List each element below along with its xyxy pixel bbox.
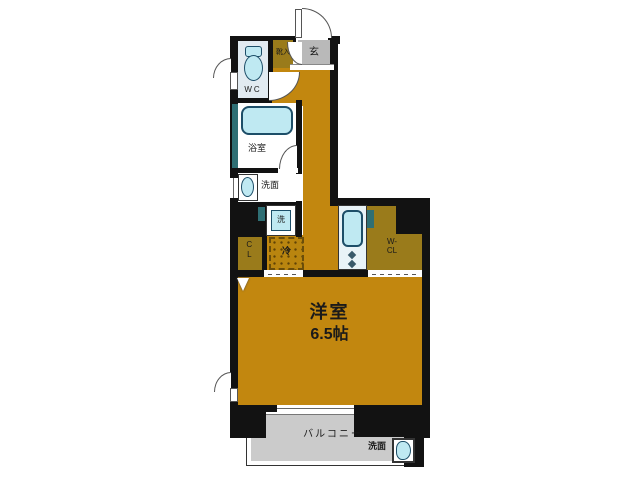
main-room-size: 6.5帖	[237, 326, 422, 344]
entrance-door-leaf	[295, 9, 302, 38]
balcony-label: バルコニー	[251, 429, 415, 440]
bathtub-icon	[241, 106, 293, 135]
entrance-step	[290, 64, 334, 70]
opening-fridge-to-room	[264, 270, 303, 277]
washer-label: 洗	[271, 212, 291, 228]
walk-in-closet-label: W- CL	[378, 238, 406, 256]
toilet-bowl-icon	[244, 55, 263, 81]
wall-wing-notch	[396, 198, 426, 234]
main-room-title: 洋室 6.5帖	[237, 303, 422, 343]
outdoor-basin-label: 洗面	[368, 442, 386, 452]
window-mainroom-south	[277, 405, 354, 412]
closet-cl-label: CL	[244, 240, 253, 260]
hallway-floor-lower	[303, 202, 338, 270]
wall-cl-right	[262, 235, 267, 270]
kitchen-sink-icon	[342, 210, 363, 247]
opening-wcl-to-room	[368, 270, 422, 277]
wall-strip-bottom-mid	[303, 270, 368, 277]
mainroom-west-door-swing-arc	[214, 372, 231, 392]
hallway-floor-mid	[303, 100, 330, 204]
mainroom-door-marker	[237, 278, 249, 291]
entrance-door-swing-arc	[302, 8, 332, 38]
mainroom-west-door-leaf	[230, 388, 238, 402]
wcl-line1: W-	[387, 237, 397, 246]
pipe-space-laundry	[258, 207, 265, 221]
washroom-sink-bowl-icon	[241, 177, 254, 197]
pipe-space-kitchen	[367, 210, 374, 228]
floor-plan: WC 靴入 玄 浴室 洗面 洗 CL 冷 W- CL 洋室 6.5帖	[0, 0, 640, 480]
wcl-line2: CL	[387, 246, 397, 255]
entrance-label: 玄	[303, 45, 325, 59]
bathroom-label: 浴室	[248, 144, 266, 154]
wall-wing-right	[422, 198, 430, 438]
wall-hall-right	[330, 36, 338, 204]
washroom-door-opening	[296, 174, 302, 201]
refrigerator-label: 冷	[269, 244, 304, 260]
main-room-name: 洋室	[237, 303, 422, 323]
outdoor-basin-bowl-icon	[396, 441, 411, 460]
wc-label: WC	[238, 84, 268, 96]
washroom-label: 洗面	[261, 181, 279, 191]
wall-strip-bottom-left	[230, 270, 264, 277]
wc-exterior-door-leaf	[230, 72, 238, 90]
wc-exterior-door-swing-arc	[213, 58, 231, 78]
window-washroom-west	[229, 178, 238, 198]
